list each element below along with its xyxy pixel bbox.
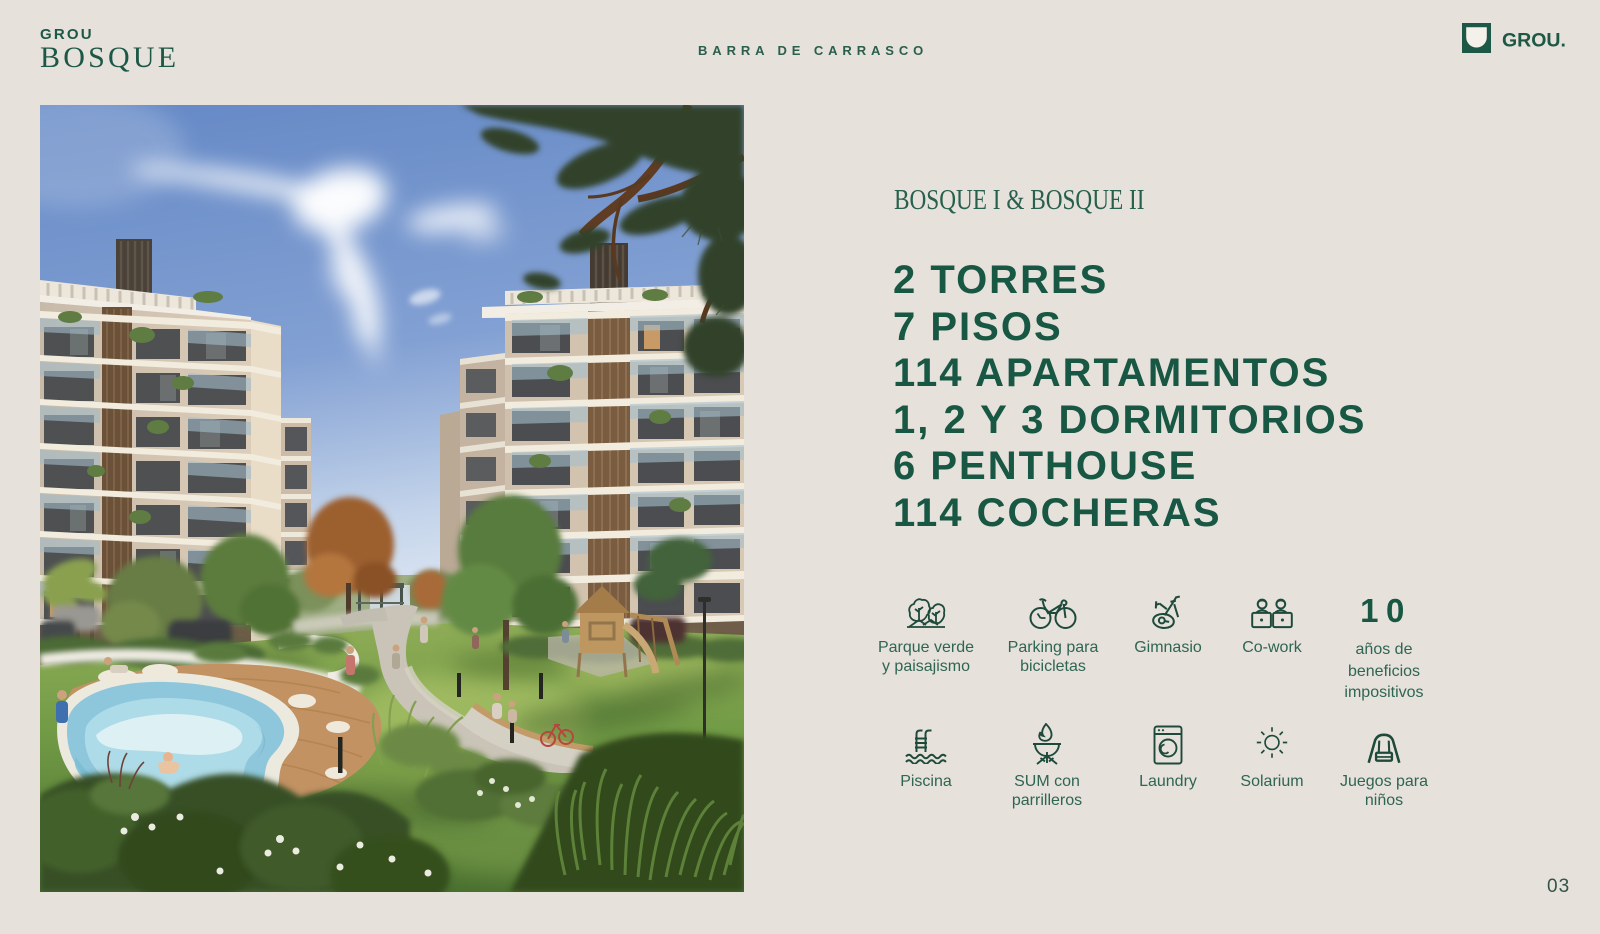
svg-text:GROU.: GROU. — [1502, 30, 1566, 52]
